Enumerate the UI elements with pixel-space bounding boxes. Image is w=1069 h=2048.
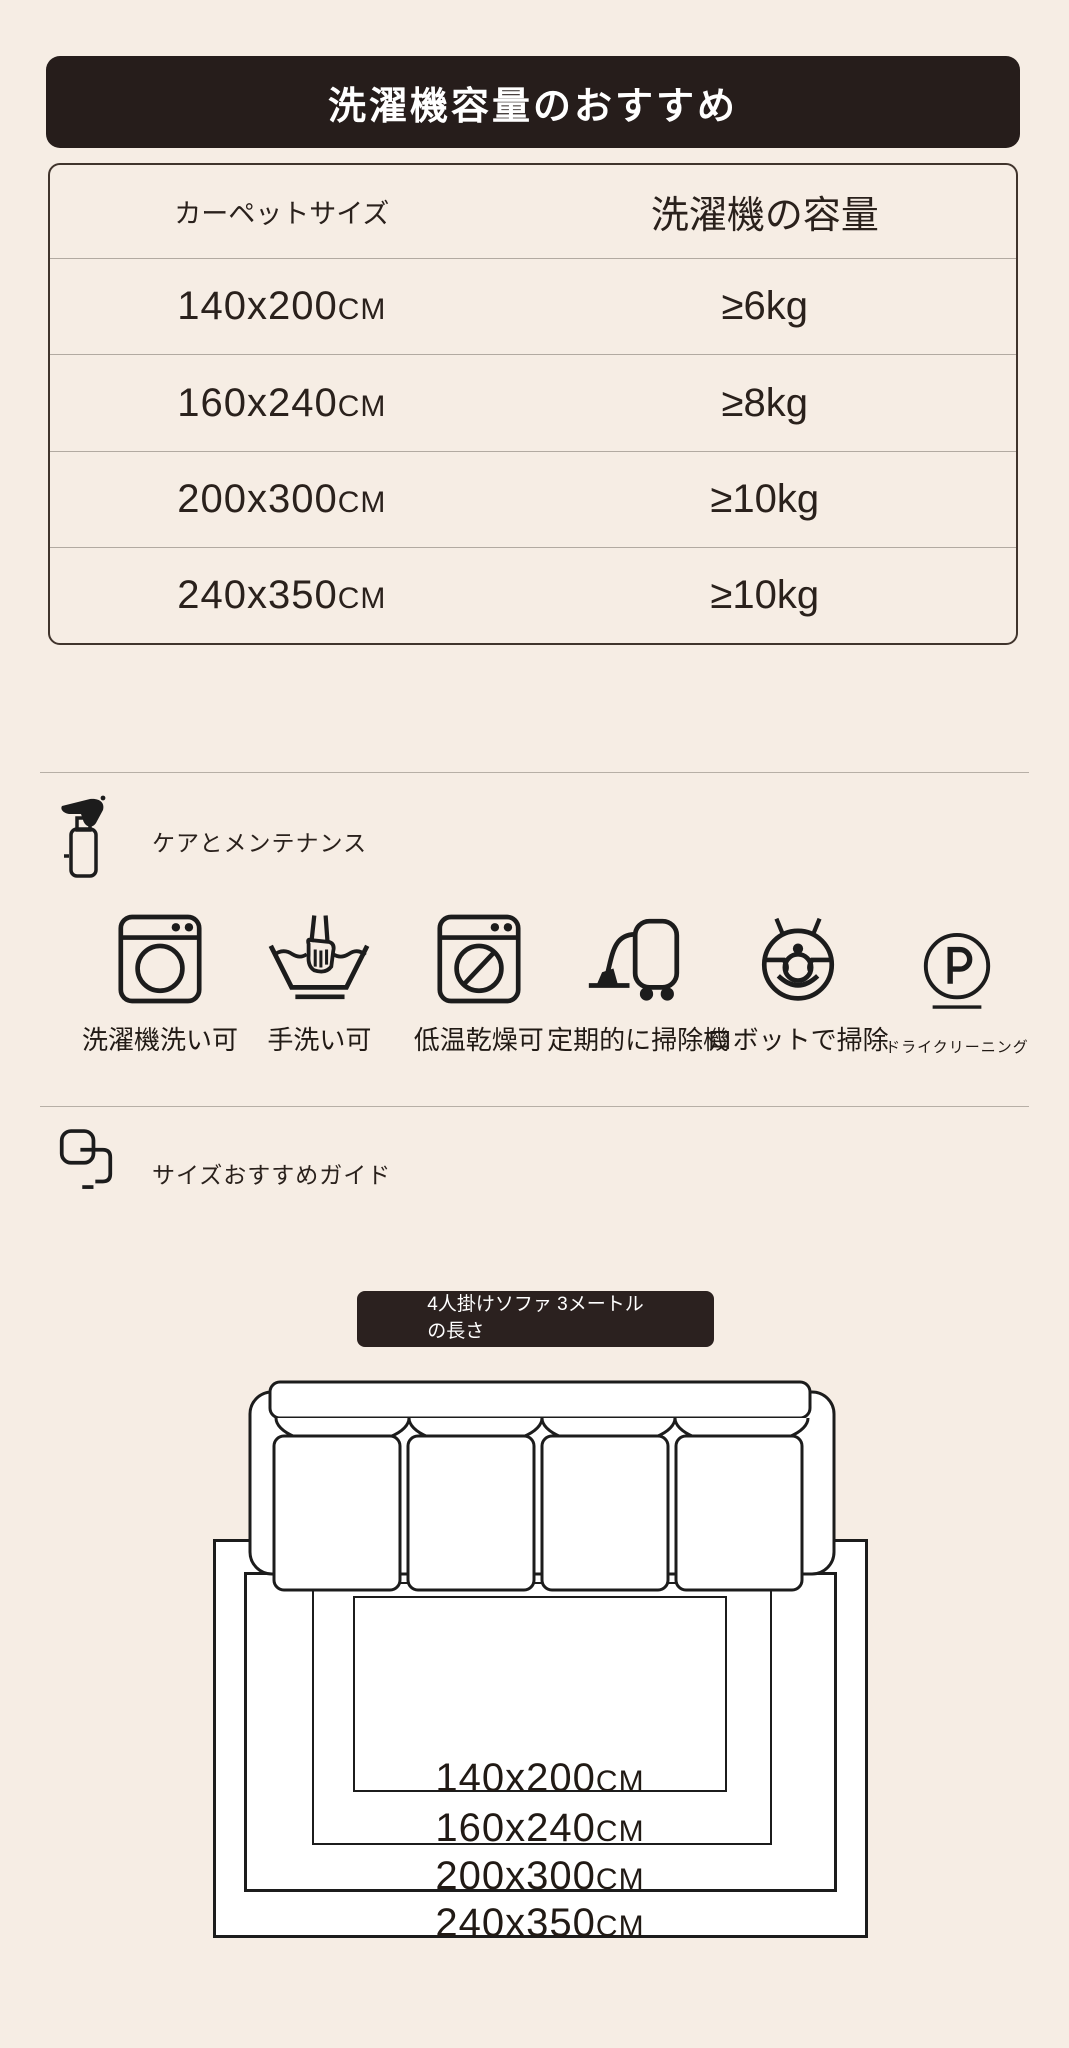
sofa-note-tooltip: 4人掛けソファ 3メートル の長さ [357,1291,714,1347]
care-caption: 手洗い可 [267,1020,371,1057]
spray-bottle-icon [56,794,110,885]
care-item-robot-vacuum: ロボットで掃除 [734,912,862,1057]
size-unit: CM [338,293,387,326]
size-guide-icon [58,1126,114,1199]
care-section-title: ケアとメンテナンス [152,824,367,858]
size-unit: CM [596,1910,645,1943]
carpet-size-cell: 240x350CM [50,573,514,618]
robot-vacuum-icon [753,912,843,1006]
size-value: 240x350 [177,573,337,617]
carpet-size-label: 160x240CM [340,1806,740,1851]
size-value: 140x200 [177,284,337,328]
care-caption: 洗濯機洗い可 [82,1020,238,1057]
table-row: 200x300CM ≥10kg [50,451,1016,547]
care-caption: 低温乾燥可 [414,1020,544,1057]
table-row: 140x200CM ≥6kg [50,258,1016,354]
table-row: 240x350CM ≥10kg [50,547,1016,643]
carpet-size-cell: 200x300CM [50,477,514,522]
size-value: 200x300 [177,477,337,521]
size-value: 160x240 [435,1806,595,1850]
care-item-hand-wash: 手洗い可 [255,912,383,1057]
care-icons-row: 洗濯機洗い可 手洗い可 [96,893,1021,1057]
carpet-size-cell: 160x240CM [50,381,514,426]
size-guide-title: サイズおすすめガイド [152,1156,391,1190]
section-divider [40,1106,1029,1107]
size-unit: CM [338,390,387,423]
size-unit: CM [338,486,387,519]
tumble-dry-low-icon [437,912,521,1006]
washing-machine-icon [118,912,202,1006]
column-header-carpet-size: カーペットサイズ [50,192,514,231]
size-unit: CM [338,582,387,615]
vacuum-cleaner-icon [586,912,690,1006]
care-caption: ドライクリーニング [885,1036,1029,1057]
size-unit: CM [596,1765,645,1798]
table-row: 160x240CM ≥8kg [50,354,1016,450]
sofa-note-text: 4人掛けソファ 3メートル の長さ [427,1292,643,1345]
carpet-size-label: 140x200CM [340,1756,740,1801]
size-unit: CM [596,1815,645,1848]
table-header-row: カーペットサイズ 洗濯機の容量 [50,165,1016,258]
care-item-machine-wash: 洗濯機洗い可 [96,912,224,1057]
capacity-cell: ≥8kg [514,381,1016,426]
sofa-top-view [242,1380,842,1600]
size-value: 140x200 [435,1756,595,1800]
product-info-page: 洗濯機容量のおすすめ カーペットサイズ 洗濯機の容量 140x200CM ≥6k… [0,0,1069,2048]
hand-wash-icon [267,912,371,1006]
size-value: 200x300 [435,1854,595,1898]
section-banner: 洗濯機容量のおすすめ [46,56,1020,148]
capacity-cell: ≥6kg [514,284,1016,329]
size-unit: CM [596,1863,645,1896]
column-header-machine-capacity: 洗濯機の容量 [514,184,1016,239]
care-item-dry-cleaning: ドライクリーニング [893,928,1021,1057]
section-divider [40,772,1029,773]
care-caption: 定期的に掃除機 [547,1020,729,1057]
dry-cleaning-icon [918,928,996,1016]
size-value: 160x240 [177,381,337,425]
care-item-vacuum: 定期的に掃除機 [574,912,702,1057]
capacity-cell: ≥10kg [514,477,1016,522]
capacity-cell: ≥10kg [514,573,1016,618]
carpet-size-label: 240x350CM [340,1901,740,1946]
carpet-size-label: 200x300CM [340,1854,740,1899]
size-value: 240x350 [435,1901,595,1945]
banner-title: 洗濯機容量のおすすめ [328,75,738,130]
care-caption: ロボットで掃除 [707,1020,889,1057]
carpet-size-cell: 140x200CM [50,284,514,329]
care-item-low-temp-dry: 低温乾燥可 [415,912,543,1057]
capacity-table: カーペットサイズ 洗濯機の容量 140x200CM ≥6kg 160x240CM… [48,163,1018,645]
